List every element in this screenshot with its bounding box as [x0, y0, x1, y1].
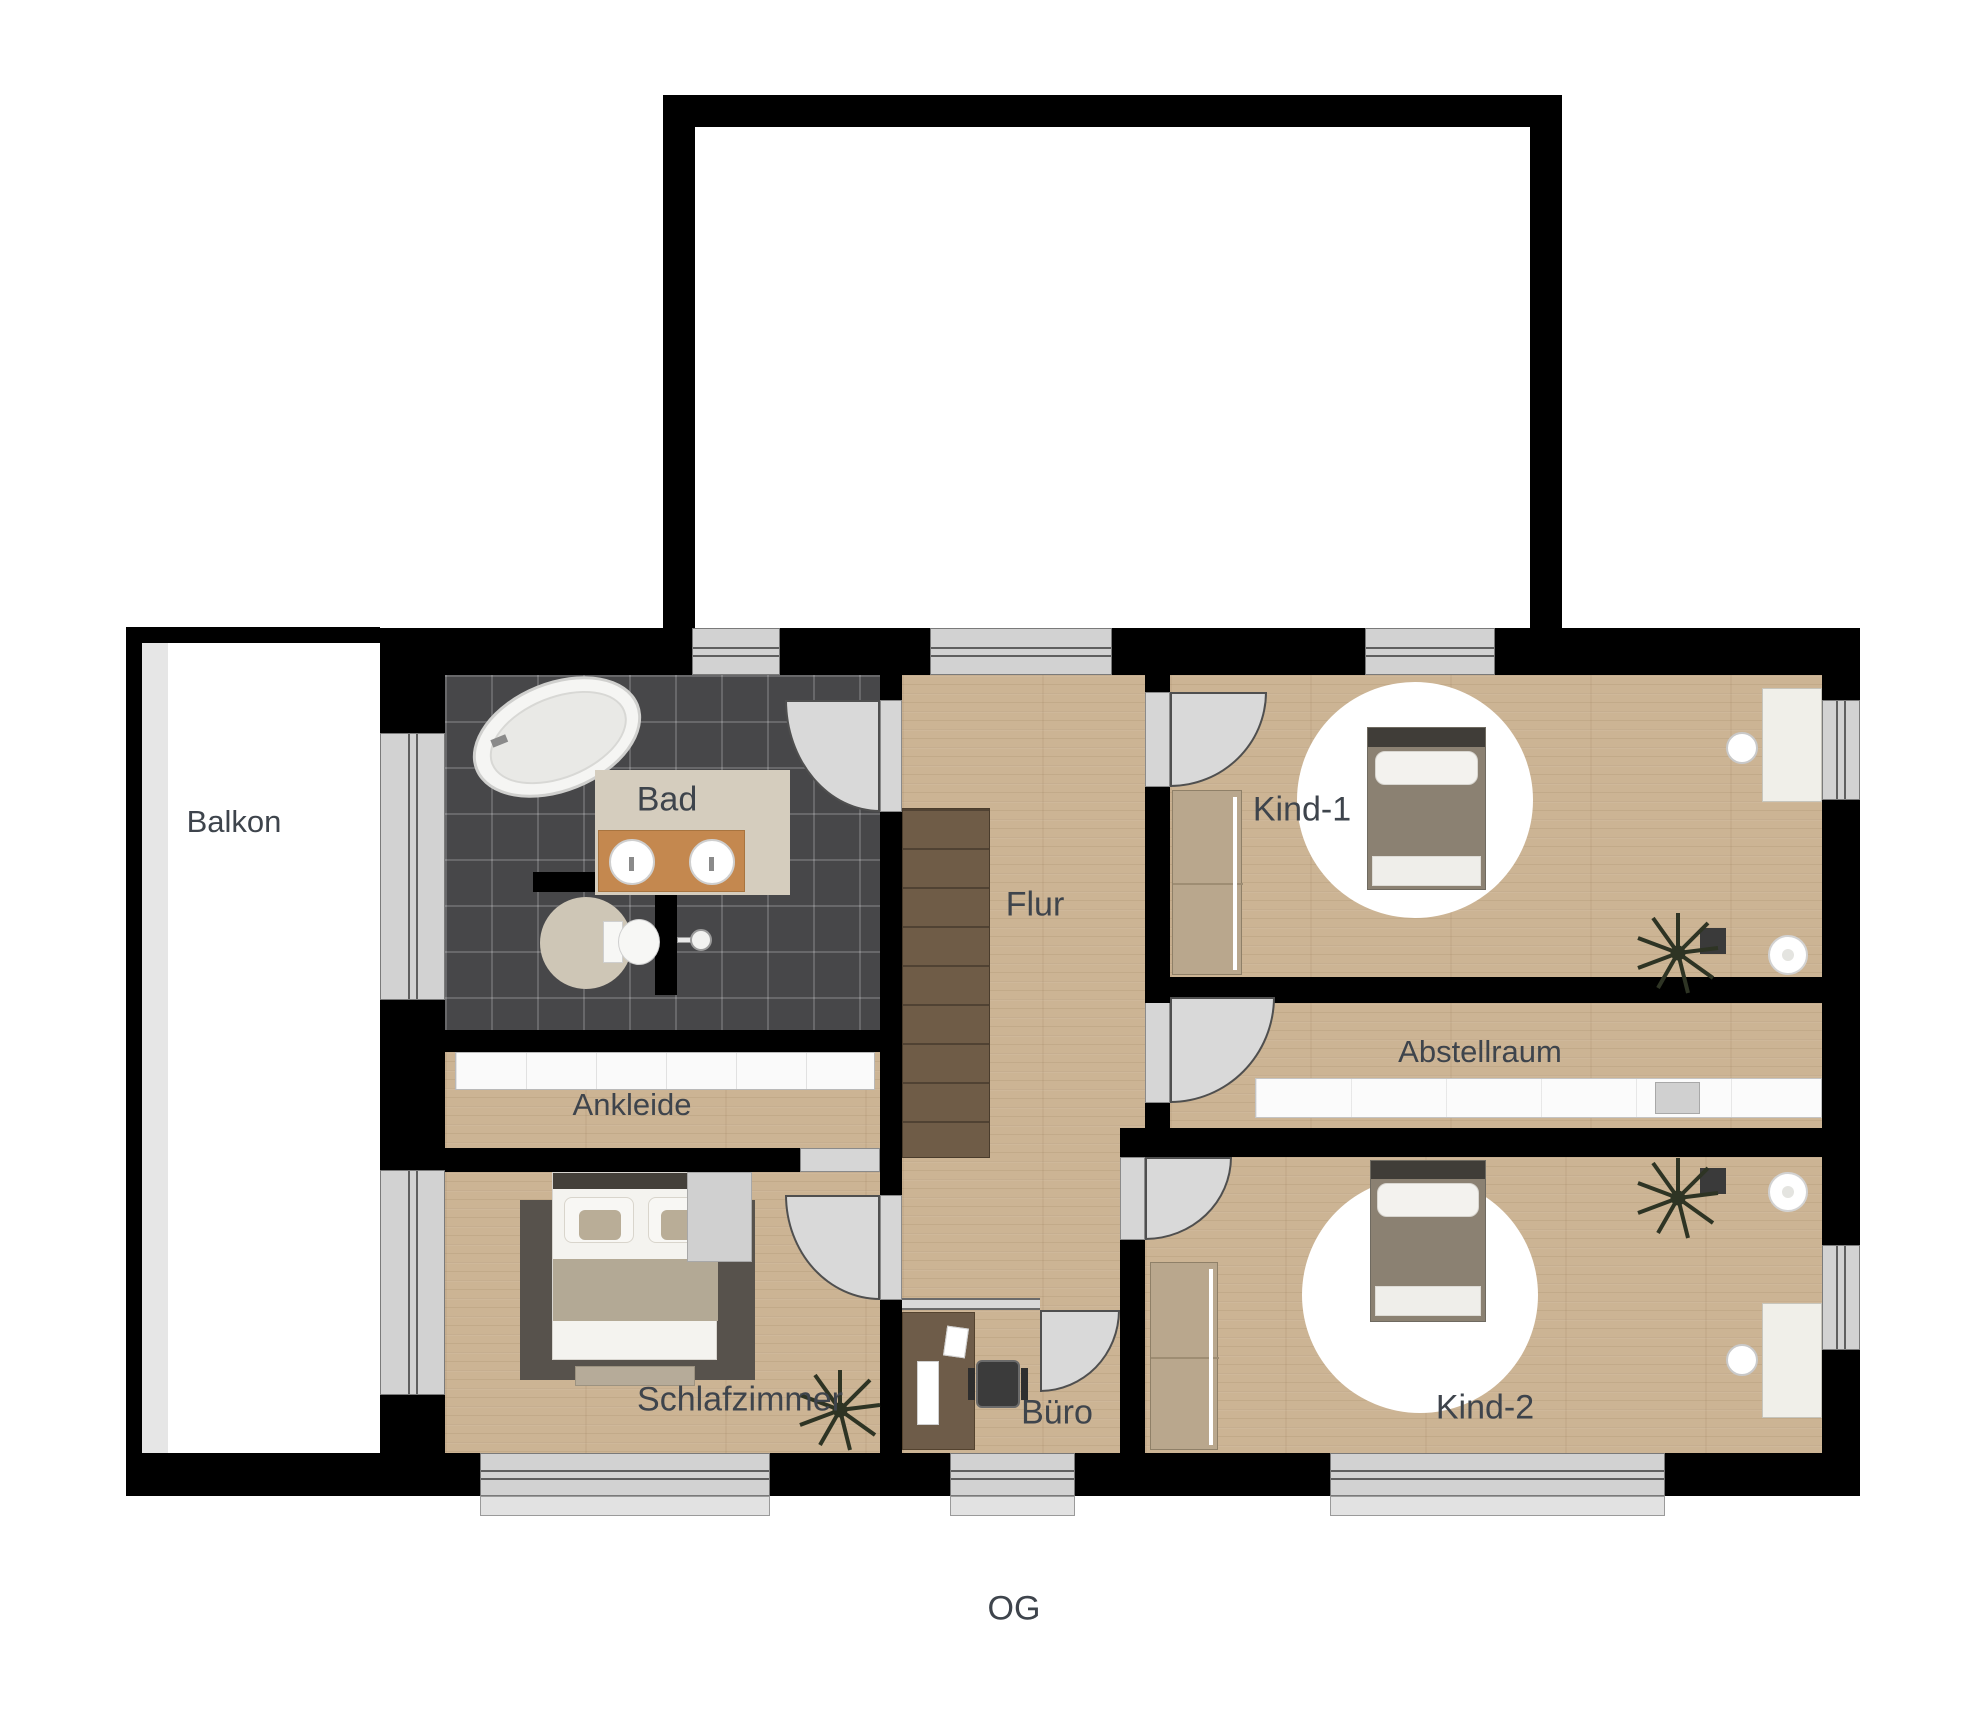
kind1-door-threshold — [1145, 692, 1170, 787]
keyboard-icon — [917, 1361, 939, 1425]
spine-wall-seg — [1145, 787, 1170, 997]
kind2-east-window[interactable] — [1822, 1245, 1860, 1350]
kind1-desk[interactable] — [1762, 688, 1822, 802]
kind2-label: Kind-2 — [1436, 1389, 1534, 1428]
buero-desk[interactable] — [902, 1312, 975, 1450]
ankleide-wardrobe-cabinets[interactable] — [455, 1052, 875, 1090]
south-wall-seg — [1075, 1453, 1330, 1496]
bad-door-threshold — [880, 700, 902, 812]
pillow — [564, 1197, 634, 1243]
window-sill — [1330, 1496, 1665, 1516]
chair-armrest — [968, 1368, 975, 1400]
wardrobe-slider — [1209, 1269, 1213, 1445]
kind1-stool[interactable] — [1726, 732, 1758, 764]
plant-icon — [1628, 903, 1728, 1003]
bed-pillow — [1375, 751, 1478, 785]
plant-icon — [1628, 1148, 1728, 1248]
south-wall-seg — [1665, 1453, 1860, 1496]
schlafzimmer-south-window[interactable] — [480, 1453, 770, 1496]
bed-foot-blanket — [1375, 1286, 1481, 1316]
office-chair[interactable] — [976, 1360, 1020, 1408]
storage-shelf[interactable] — [1255, 1078, 1822, 1118]
north-wall-seg — [1495, 628, 1860, 675]
toilet-bowl — [618, 919, 660, 965]
balcony-left-wall — [126, 627, 142, 1496]
kind2-south-window[interactable] — [1330, 1453, 1665, 1496]
window-glass-line — [1331, 1470, 1664, 1480]
schlafzimmer-wardrobe[interactable] — [687, 1172, 752, 1262]
balkon-label: Balkon — [187, 804, 282, 840]
void-top-wall — [663, 95, 1562, 127]
kind2-door-threshold — [1120, 1157, 1145, 1240]
window-glass-line — [931, 647, 1111, 657]
spine-wall-seg — [1145, 1103, 1170, 1128]
buero-south-window[interactable] — [950, 1453, 1075, 1496]
kind2-bed[interactable] — [1370, 1160, 1486, 1322]
ankleide-label: Ankleide — [573, 1087, 692, 1123]
kind2-stool[interactable] — [1726, 1344, 1758, 1376]
shower-head-icon[interactable] — [690, 929, 712, 951]
window-glass-line — [1836, 1246, 1846, 1349]
paper-icon — [943, 1326, 969, 1359]
west-wall-seg — [380, 1000, 445, 1170]
east-wall-seg — [1822, 800, 1860, 1245]
bed-headboard — [1368, 728, 1485, 747]
vanity[interactable] — [598, 830, 745, 892]
bad-west-window[interactable] — [380, 733, 445, 1000]
faucet-icon — [709, 857, 714, 871]
pillow-inner — [579, 1210, 621, 1240]
schlafzimmer-label: Schlafzimmer — [637, 1381, 843, 1420]
floor-lamp-icon — [1768, 935, 1808, 975]
schlafzimmer-door-threshold — [880, 1195, 902, 1300]
kind1-label: Kind-1 — [1253, 791, 1351, 830]
kind1-wardrobe[interactable] — [1172, 790, 1242, 975]
floor-title: OG — [988, 1590, 1041, 1629]
bad-ankleide-wall — [445, 1030, 880, 1052]
window-sill — [480, 1496, 770, 1516]
north-wall-seg — [780, 628, 930, 675]
window-glass-line — [408, 734, 418, 999]
abstellraum-door-threshold — [1145, 997, 1170, 1103]
buero-east-wall — [1120, 1240, 1145, 1453]
balcony-railing-strip — [142, 643, 168, 1453]
north-wall-seg — [1112, 628, 1365, 675]
south-wall-seg — [126, 1453, 480, 1496]
floorplan-canvas: Balkon Bad Flur Kind-1 Abstellraum Kind-… — [0, 0, 1987, 1735]
kind2-wardrobe[interactable] — [1150, 1262, 1218, 1450]
ankleide-doorway-threshold — [800, 1148, 880, 1172]
kind1-bed[interactable] — [1367, 727, 1486, 890]
balcony-top-wall — [126, 627, 380, 643]
window-sill — [950, 1496, 1075, 1516]
buero-glass-wall — [902, 1298, 1040, 1310]
window-glass-line — [693, 647, 779, 657]
flur-label: Flur — [1006, 886, 1065, 925]
flur-west-wall-seg — [880, 675, 902, 700]
bed-foot-blanket — [1372, 856, 1481, 886]
faucet-icon — [629, 857, 634, 871]
abstellraum-label: Abstellraum — [1398, 1034, 1562, 1070]
bad-label: Bad — [637, 781, 698, 820]
ankleide-schlafzimmer-wall — [445, 1148, 800, 1172]
bad-north-window[interactable] — [692, 628, 780, 675]
lamp-center — [1782, 949, 1794, 961]
buero-label: Büro — [1021, 1394, 1093, 1433]
east-wall-seg — [1822, 628, 1860, 700]
floor-lamp-icon — [1768, 1172, 1808, 1212]
west-wall-seg — [380, 628, 445, 733]
void-right-wall — [1530, 127, 1562, 628]
kind1-north-window[interactable] — [1365, 628, 1495, 675]
void-left-wall — [663, 127, 695, 628]
bed-headboard — [1371, 1161, 1485, 1179]
lamp-center — [1782, 1186, 1794, 1198]
window-glass-line — [1836, 701, 1846, 799]
bed-blanket — [553, 1259, 718, 1321]
schlafzimmer-west-window[interactable] — [380, 1170, 445, 1395]
kind1-east-window[interactable] — [1822, 700, 1860, 800]
kind2-desk[interactable] — [1762, 1303, 1822, 1418]
bed-pillow — [1377, 1183, 1479, 1217]
stairs[interactable] — [902, 808, 990, 1158]
window-glass-line — [408, 1171, 418, 1394]
flur-north-window[interactable] — [930, 628, 1112, 675]
spine-wall-seg — [1145, 675, 1170, 692]
window-glass-line — [951, 1470, 1074, 1480]
window-glass-line — [1366, 647, 1494, 657]
shelf-box — [1655, 1082, 1700, 1114]
flur-west-wall-seg — [880, 812, 902, 1195]
wardrobe-slider — [1233, 797, 1237, 970]
window-glass-line — [481, 1470, 769, 1480]
